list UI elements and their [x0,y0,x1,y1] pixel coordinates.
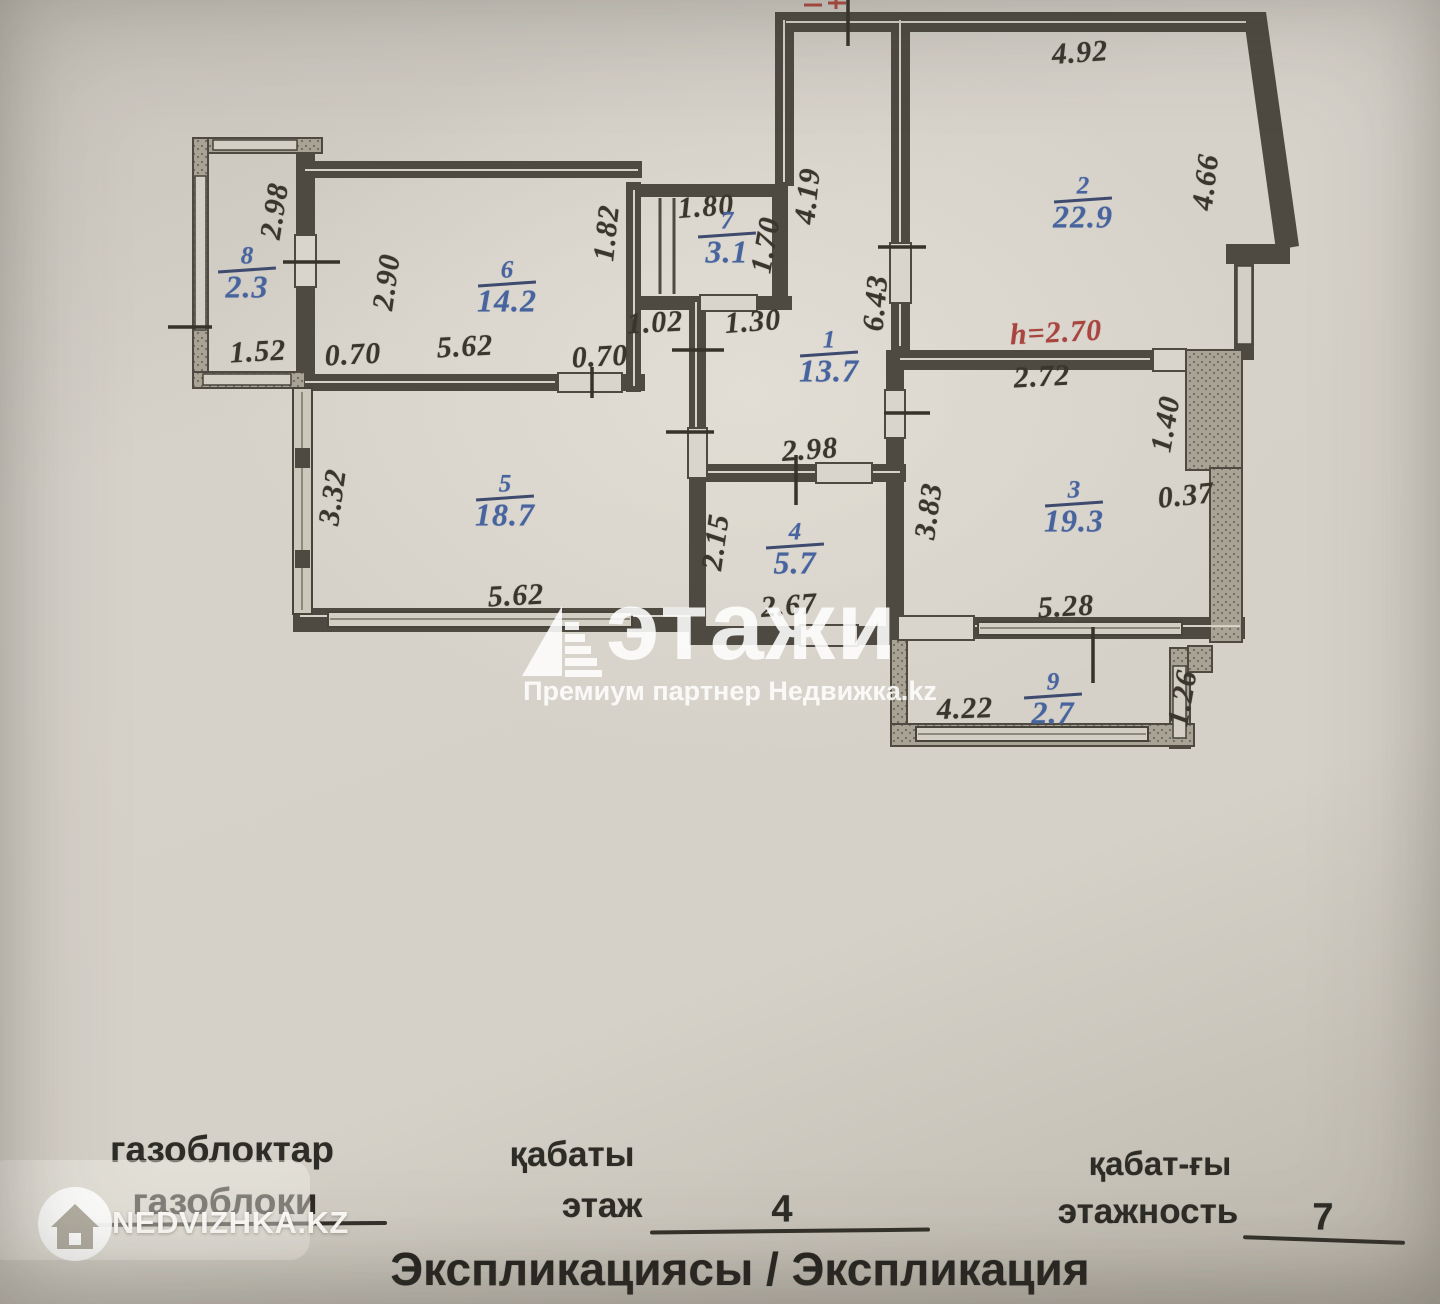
room-label-6: 614.2 [477,260,537,315]
footer-floor-value: 4 [771,1189,792,1232]
dimension-label: 2.98 [781,431,840,469]
dimension-label: 1.30 [724,303,783,341]
dimension-label: 2.98 [254,180,296,241]
etazhi-logo-icon [520,600,602,684]
room-area: 2.7 [1032,699,1075,727]
dimension-label: 5.62 [436,329,494,366]
dimension-label: 0.70 [571,339,629,376]
room-number: 3 [1068,480,1081,501]
dimension-label: 1.26 [1161,667,1204,729]
dimension-label: 3.32 [312,467,354,528]
room-label-4: 45.7 [766,522,824,577]
explication-title: Экспликациясы / Экспликация [355,1242,1125,1296]
dimension-label: 2.72 [1013,359,1071,396]
dimension-label: 1.52 [229,334,287,371]
nedvizhka-logo-text: NEDVIZHKA.KZ [112,1205,349,1241]
room-number: 9 [1047,672,1060,693]
room-area: 3.1 [706,238,749,266]
dimension-label: 3.83 [908,481,950,542]
room-number: 1 [823,330,836,351]
room-number: 7 [721,211,734,232]
footer-storeys-label-kz: қабат-ғы [1089,1145,1232,1183]
room-area: 22.9 [1053,203,1113,231]
watermark-subtitle: Премиум партнер Недвижка.kz [510,676,950,707]
dimension-label: 4.66 [1186,152,1227,212]
room-label-7: 73.1 [698,211,756,266]
room-number: 4 [789,522,802,543]
room-label-5: 518.7 [475,474,535,529]
room-area: 18.7 [475,501,535,529]
room-label-2: 222.9 [1053,176,1113,231]
room-number: 8 [241,246,254,267]
room-label-8: 82.3 [218,246,276,301]
dimension-label: 2.15 [695,512,737,573]
room-area: 19.3 [1044,507,1104,535]
room-area: 14.2 [477,287,537,315]
scanned-floorplan-photo: 4.924.664.196.431.821.801.701.021.302.98… [0,0,1440,1304]
room-number: 2 [1077,176,1090,197]
room-area: 13.7 [799,357,859,385]
height-note: h=2.70 [1009,314,1103,353]
room-label-3: 319.3 [1044,480,1104,535]
footer-floor-label-kz: қабаты [509,1135,634,1175]
room-label-1: 113.7 [799,330,859,385]
watermark: этажи Премиум партнер Недвижка.kz [520,590,940,710]
dimension-label: 5.28 [1037,589,1095,626]
dimension-label: 1.82 [587,203,627,263]
room-number: 5 [499,474,512,495]
room-label-9: 92.7 [1024,672,1082,727]
dimension-label: 0.70 [324,337,382,374]
dimension-label: 2.90 [366,252,408,313]
watermark-brand: этажи [606,576,898,676]
dimension-label: 0.37 [1156,476,1216,516]
footer-storeys-value: 7 [1312,1197,1333,1240]
dimension-label: 1.02 [626,305,684,342]
dimension-label: 4.92 [1051,34,1110,72]
nedvizhka-house-icon [36,1185,114,1263]
dimension-label: 6.43 [857,273,896,332]
footer-storeys-label-ru: этажность [1058,1192,1238,1232]
room-area: 2.3 [226,273,269,301]
dimension-label: 4.19 [788,166,828,226]
dimension-label: 1.40 [1144,393,1187,455]
footer-floor-label-ru: этаж [562,1186,642,1226]
room-number: 6 [501,260,514,281]
